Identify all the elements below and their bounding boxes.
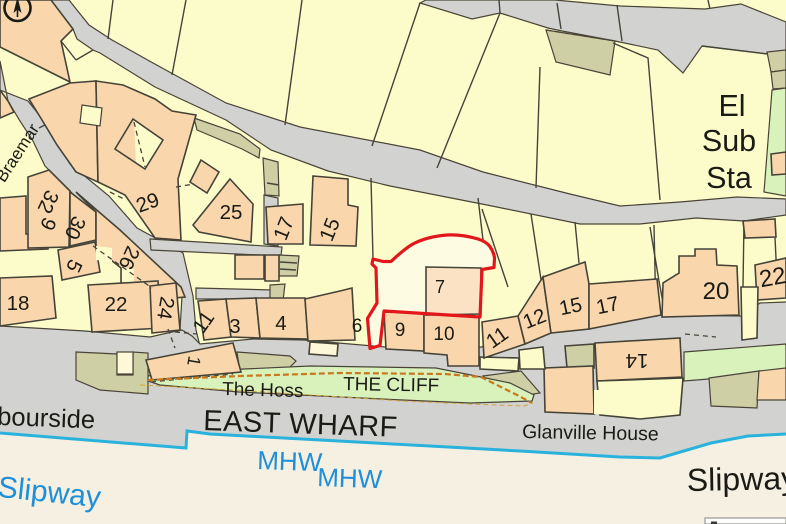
svg-text:MHW: MHW [317,462,383,494]
svg-text:14: 14 [626,349,649,372]
svg-text:bourside: bourside [0,403,96,434]
svg-text:4: 4 [275,312,286,335]
svg-text:15: 15 [557,293,584,320]
svg-text:10: 10 [433,324,454,345]
svg-text:THE CLIFF: THE CLIFF [343,374,439,397]
svg-text:7: 7 [435,277,445,297]
svg-text:El: El [718,89,745,123]
svg-text:3: 3 [229,315,240,338]
svg-text:22: 22 [757,262,786,293]
svg-text:The Hoss: The Hoss [222,379,304,402]
svg-text:24: 24 [152,295,179,321]
svg-text:EAST WHARF: EAST WHARF [203,405,399,444]
svg-text:Sta: Sta [706,161,752,195]
svg-text:9: 9 [395,320,406,341]
svg-text:18: 18 [7,292,30,315]
svg-text:17: 17 [594,292,621,319]
svg-text:22: 22 [105,293,128,316]
svg-text:6: 6 [352,316,363,337]
svg-text:MHW: MHW [257,445,323,477]
svg-text:Sub: Sub [702,124,756,158]
svg-text:20: 20 [703,278,730,305]
svg-text:Glanville House: Glanville House [522,421,659,445]
svg-text:25: 25 [220,201,243,224]
svg-text:Slipway: Slipway [686,460,786,498]
